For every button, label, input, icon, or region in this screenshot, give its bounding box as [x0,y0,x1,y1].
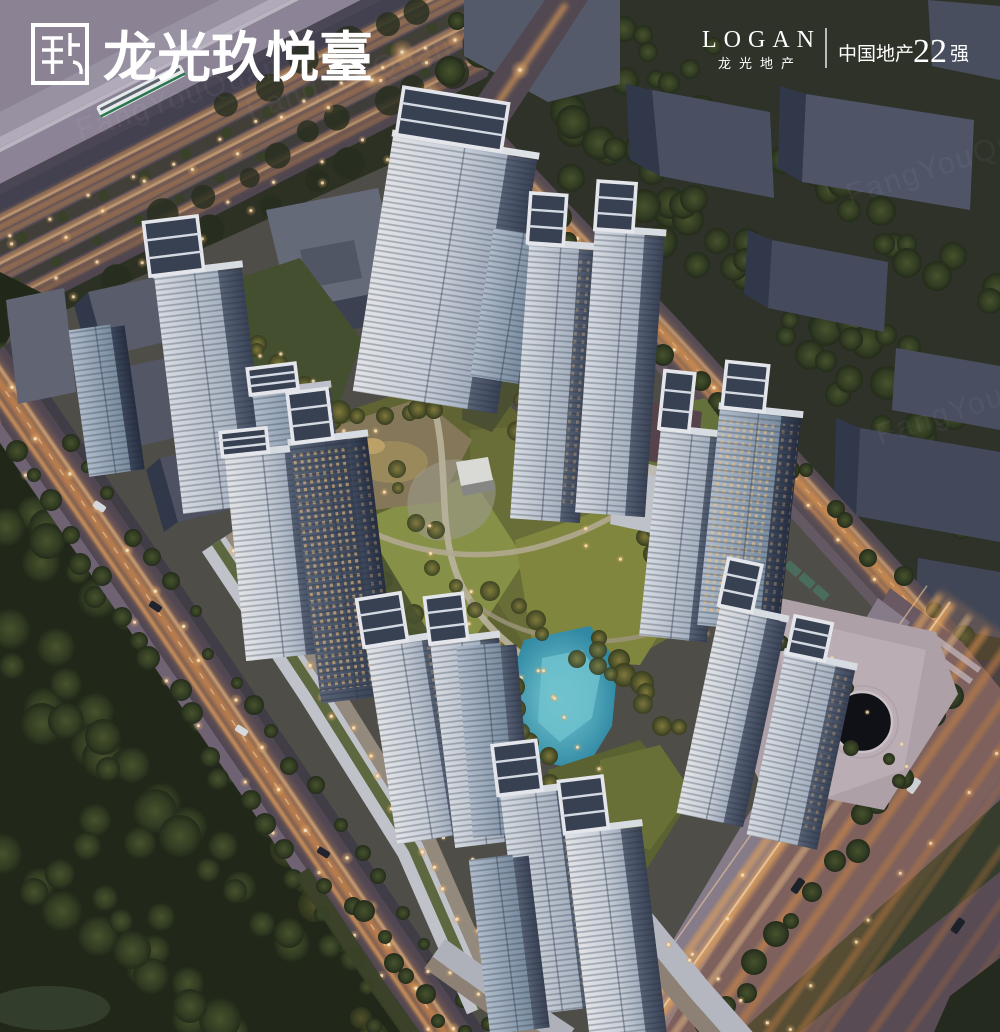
svg-text:22: 22 [913,33,947,70]
svg-text:龙光地产: 龙光地产 [718,56,802,71]
svg-text:龙光玖悦臺: 龙光玖悦臺 [103,28,373,88]
svg-text:强: 强 [950,44,969,65]
svg-text:中国地产: 中国地产 [838,43,914,65]
svg-text:LOGAN: LOGAN [702,27,821,53]
